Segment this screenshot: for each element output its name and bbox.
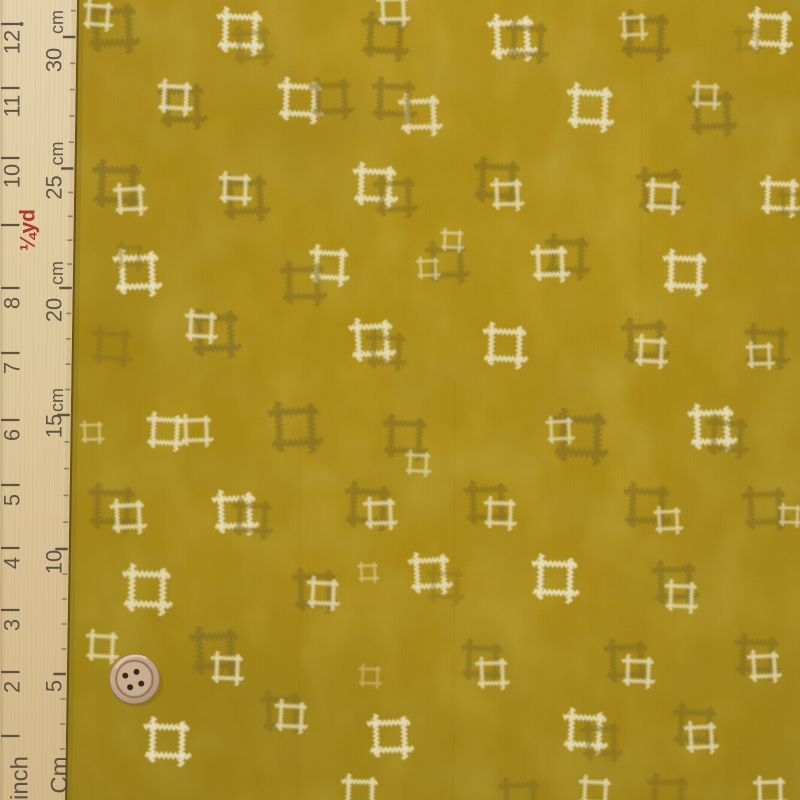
svg-text:5: 5 [42,680,67,692]
svg-text:cm: cm [47,261,67,285]
svg-text:20: 20 [42,298,67,322]
svg-text:Cm: Cm [47,756,74,793]
svg-text:30: 30 [42,48,67,72]
svg-text:5: 5 [0,494,25,506]
svg-text:4: 4 [0,557,25,569]
svg-text:11: 11 [0,95,25,118]
svg-text:25: 25 [42,175,67,199]
svg-text:12: 12 [0,30,25,54]
svg-text:¼yd: ¼yd [17,209,40,251]
svg-text:10: 10 [0,164,25,188]
svg-text:2: 2 [0,681,25,693]
svg-text:inch: inch [7,756,34,800]
svg-text:15: 15 [42,414,67,438]
svg-text:cm: cm [47,388,67,412]
svg-text:7: 7 [0,362,25,374]
svg-text:cm: cm [47,142,67,166]
svg-text:10: 10 [42,550,67,574]
svg-text:3: 3 [0,619,25,631]
svg-text:6: 6 [0,429,25,441]
svg-text:cm: cm [47,10,67,34]
svg-text:8: 8 [0,297,25,309]
